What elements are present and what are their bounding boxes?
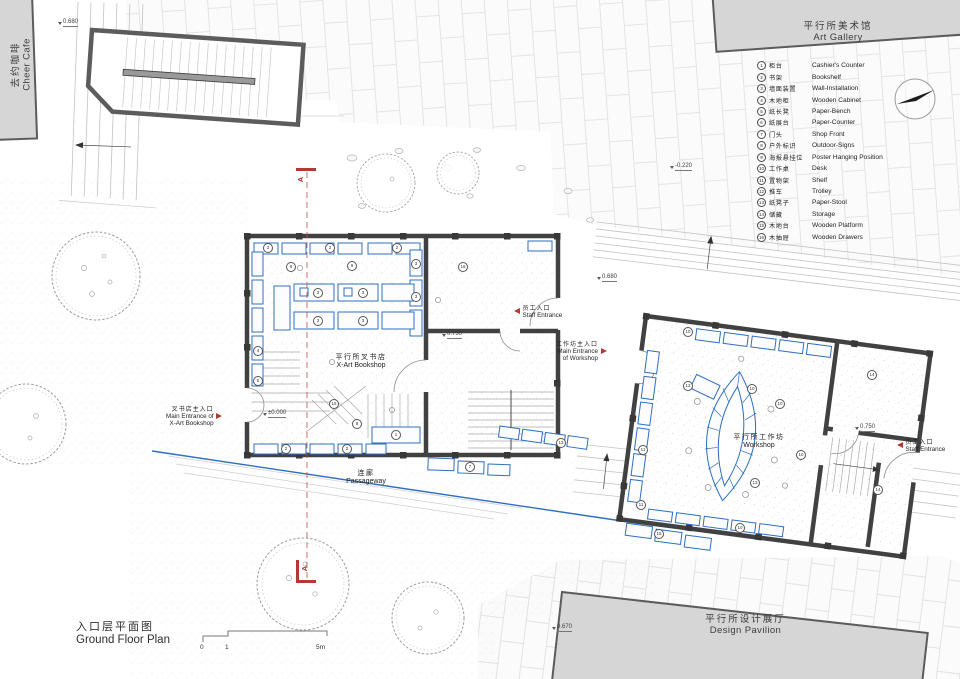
item-marker-number: 7 [465,462,475,472]
item-marker: 10 [747,384,757,394]
item-marker-number: 3 [358,316,368,326]
item-marker-number: 10 [775,399,785,409]
legend-row: 16 木抽屉 Wooden Drawers [757,232,960,243]
item-marker: 2 [281,444,291,454]
item-marker: 7 [465,462,475,472]
item-marker: 3 [411,292,421,302]
legend-label-en: Wooden Platform [812,222,863,229]
item-marker-number: 2 [325,243,335,253]
elevation-marker: ±0.000 [263,410,286,418]
scalebar-0: 0 [200,644,204,651]
legend-number-icon: 15 [757,221,766,230]
item-marker: 14 [873,485,883,495]
gallery-label-zh: 平行所美术馆 [757,18,919,32]
item-marker: 11 [636,500,646,510]
legend-row: 3 墙面装置 Wall-Installation [757,83,960,94]
item-marker: 16 [458,262,468,272]
entrance-label-en: Staff Entrance [523,312,563,319]
legend-number-icon: 5 [757,107,766,116]
entrance-label-en: Staff Entrance [906,446,946,453]
item-marker: 15 [329,399,339,409]
passageway-label: 连廊 Passageway [335,468,397,485]
item-marker: 10 [735,523,745,533]
item-marker: 2 [342,444,352,454]
item-marker: 13 [750,478,760,488]
item-marker-number: 5 [253,376,263,386]
item-marker-number: 13 [556,438,566,448]
legend-label-zh: 储藏 [769,210,783,219]
item-marker: 9 [347,261,357,271]
item-marker: 3 [358,316,368,326]
elevation-value: 0.750 [447,331,462,339]
section-letter-bottom: A [300,566,309,571]
item-marker: 10 [683,327,693,337]
entrance-arrow-icon [601,348,607,354]
stair-building [86,30,303,125]
legend-number-icon: 10 [757,164,766,173]
legend-label-zh: 纸长凳 [769,107,789,116]
legend-row: 5 纸长凳 Paper-Bench [757,106,960,117]
item-marker-number: 4 [253,346,263,356]
item-marker-number: 9 [347,261,357,271]
legend-label-zh: 纸展台 [769,118,789,127]
legend-number-icon: 8 [757,141,766,150]
item-marker-number: 15 [329,399,339,409]
elevation-value: 0.680 [63,19,78,27]
legend-label-zh: 门头 [769,130,783,139]
floor-plan-canvas: 去约咖啡 Cheer Cafe 平行所美术馆 Art Gallery 平行所设计… [0,0,960,679]
item-marker-number: 2 [342,444,352,454]
legend-row: 2 书架 Bookshelf [757,71,960,82]
item-marker-number: 2 [392,243,402,253]
legend-number-icon: 12 [757,187,766,196]
legend-row: 4 木地柜 Wooden Cabinet [757,94,960,105]
item-marker: 8 [352,419,362,429]
level-triangle-icon [855,427,859,430]
entrance-label: 叉书店主入口 Main Entrance of X-Art Bookshop [166,404,222,427]
elevation-marker: 0.680 [58,19,78,27]
elevation-value: 0.750 [860,424,875,432]
legend-label-zh: 墙面装置 [769,84,796,93]
legend-row: 8 户外标识 Outdoor-Signs [757,140,960,151]
item-marker: 15 [654,529,664,539]
legend-label-en: Wall-Installation [812,85,858,92]
item-marker: 10 [775,399,785,409]
legend: 1 柜台 Cashier's Counter 2 书架 Bookshelf 3 … [757,60,960,243]
item-marker-number: 12 [683,381,693,391]
entrance-arrow-icon [897,442,903,448]
elevation-value: 0.680 [602,274,617,282]
entrance-label-en: Main Entrance of Workshop [556,348,598,362]
legend-label-en: Storage [812,211,835,218]
plan-title-zh: 入口层平面图 [76,618,170,634]
level-triangle-icon [552,627,556,630]
item-marker-number: 14 [873,485,883,495]
item-marker: 4 [253,346,263,356]
legend-label-zh: 书架 [769,73,783,82]
legend-row: 9 海报悬挂位 Poster Hanging Position [757,152,960,163]
gallery-label-en: Art Gallery [757,32,919,43]
level-triangle-icon [670,166,674,169]
item-marker-number: 3 [358,288,368,298]
entrance-label: 员工入口 Staff Entrance [897,437,945,453]
item-marker: 3 [358,288,368,298]
entrance-label-zh: 员工入口 [906,437,946,446]
entrance-arrow-icon [514,308,520,314]
elevation-value: ±0.000 [268,410,286,418]
level-triangle-icon [442,334,446,337]
item-marker: 10 [796,450,806,460]
legend-label-en: Trolley [812,188,832,195]
pavilion-label-en: Design Pavilion [663,625,828,636]
legend-number-icon: 3 [757,84,766,93]
legend-label-en: Paper-Counter [812,119,855,126]
item-marker: 12 [683,381,693,391]
item-marker-number: 3 [411,259,421,269]
legend-label-zh: 置物架 [769,176,789,185]
legend-row: 14 储藏 Storage [757,209,960,220]
entrance-label-zh: 员工入口 [523,303,563,312]
legend-row: 11 置物架 Shelf [757,174,960,185]
cafe-label-zh: 去约咖啡 [8,0,22,130]
legend-label-zh: 木地柜 [769,96,789,105]
legend-label-en: Cashier's Counter [812,62,865,69]
legend-row: 15 木地台 Wooden Platform [757,220,960,231]
item-marker: 5 [253,376,263,386]
legend-number-icon: 1 [757,61,766,70]
legend-label-en: Shelf [812,177,827,184]
item-marker-number: 2 [281,444,291,454]
item-marker-number: 8 [352,419,362,429]
item-marker: 14 [867,370,877,380]
plan-title-en: Ground Floor Plan [76,634,170,646]
legend-label-zh: 纸凳子 [769,198,789,207]
item-marker: 2 [392,243,402,253]
entrance-label: 员工入口 Staff Entrance [514,303,562,319]
legend-number-icon: 13 [757,198,766,207]
legend-number-icon: 4 [757,96,766,105]
legend-row: 6 纸展台 Paper-Counter [757,117,960,128]
level-triangle-icon [597,277,601,280]
item-marker-number: 10 [796,450,806,460]
workshop-label: 平行所工作坊 Workshop [715,432,803,449]
item-marker-number: 13 [750,478,760,488]
elevation-marker: 0.750 [855,424,875,432]
entrance-label: 工作坊主入口 Main Entrance of Workshop [556,339,607,362]
legend-label-en: Outdoor-Signs [812,142,855,149]
item-marker: 1 [391,430,401,440]
legend-label-en: Paper-Bench [812,108,851,115]
item-marker: 2 [325,243,335,253]
gallery-block-label: 平行所美术馆 Art Gallery [757,18,919,43]
legend-label-zh: 户外标识 [769,141,796,150]
item-marker: 6 [286,262,296,272]
legend-number-icon: 14 [757,210,766,219]
elevation-marker: 0.750 [442,331,462,339]
cafe-block-label: 去约咖啡 Cheer Cafe [8,0,33,130]
elevation-marker: 0.670 [552,624,572,632]
plan-title: 入口层平面图 Ground Floor Plan [76,618,170,646]
item-marker: 3 [313,288,323,298]
legend-label-zh: 木地台 [769,221,789,230]
legend-label-en: Paper-Stool [812,199,847,206]
item-marker-number: 16 [458,262,468,272]
entrance-label-en: Main Entrance of X-Art Bookshop [166,413,214,427]
scalebar-5m: 5m [316,644,325,651]
level-triangle-icon [263,413,267,416]
legend-label-en: Desk [812,165,827,172]
bookshop-label: 平行所叉书店 X-Art Bookshop [315,352,407,369]
legend-label-en: Wooden Drawers [812,234,863,241]
entrance-arrow-icon [216,413,222,419]
legend-label-en: Bookshelf [812,74,841,81]
pavilion-label-zh: 平行所设计展厅 [663,611,828,625]
item-marker: 3 [313,316,323,326]
item-marker-number: 10 [747,384,757,394]
elevation-marker: -0.220 [670,163,692,171]
scalebar-1: 1 [225,644,229,651]
legend-number-icon: 2 [757,73,766,82]
legend-row: 7 门头 Shop Front [757,129,960,140]
legend-number-icon: 16 [757,233,766,242]
item-marker-number: 10 [683,327,693,337]
item-marker-number: 15 [654,529,664,539]
legend-label-zh: 柜台 [769,61,783,70]
legend-label-en: Poster Hanging Position [812,154,883,161]
elevation-marker: 0.680 [597,274,617,282]
legend-number-icon: 6 [757,118,766,127]
item-marker-number: 11 [636,500,646,510]
item-marker-number: 3 [313,288,323,298]
item-marker: 11 [638,445,648,455]
legend-label-en: Shop Front [812,131,845,138]
entrance-label-zh: 叉书店主入口 [166,404,214,413]
section-letter-top: A [296,177,305,182]
item-marker: 13 [556,438,566,448]
legend-number-icon: 7 [757,130,766,139]
item-marker: 2 [263,243,273,253]
item-marker-number: 3 [313,316,323,326]
legend-label-zh: 海报悬挂位 [769,153,803,162]
level-triangle-icon [58,22,62,25]
legend-label-en: Wooden Cabinet [812,97,861,104]
legend-row: 10 工作桌 Desk [757,163,960,174]
item-marker-number: 10 [735,523,745,533]
item-marker: 3 [411,259,421,269]
legend-row: 12 推车 Trolley [757,186,960,197]
item-marker-number: 14 [867,370,877,380]
legend-number-icon: 11 [757,176,766,185]
elevation-value: 0.670 [557,624,572,632]
legend-label-zh: 木抽屉 [769,233,789,242]
item-marker-number: 11 [638,445,648,455]
item-marker-number: 1 [391,430,401,440]
legend-row: 13 纸凳子 Paper-Stool [757,197,960,208]
legend-label-zh: 推车 [769,187,783,196]
legend-row: 1 柜台 Cashier's Counter [757,60,960,71]
item-marker-number: 3 [411,292,421,302]
cafe-label-en: Cheer Cafe [22,0,33,130]
pavilion-block-label: 平行所设计展厅 Design Pavilion [663,611,828,636]
legend-number-icon: 9 [757,153,766,162]
elevation-value: -0.220 [675,163,692,171]
item-marker-number: 6 [286,262,296,272]
item-marker-number: 2 [263,243,273,253]
entrance-label-zh: 工作坊主入口 [556,339,598,348]
legend-label-zh: 工作桌 [769,164,789,173]
